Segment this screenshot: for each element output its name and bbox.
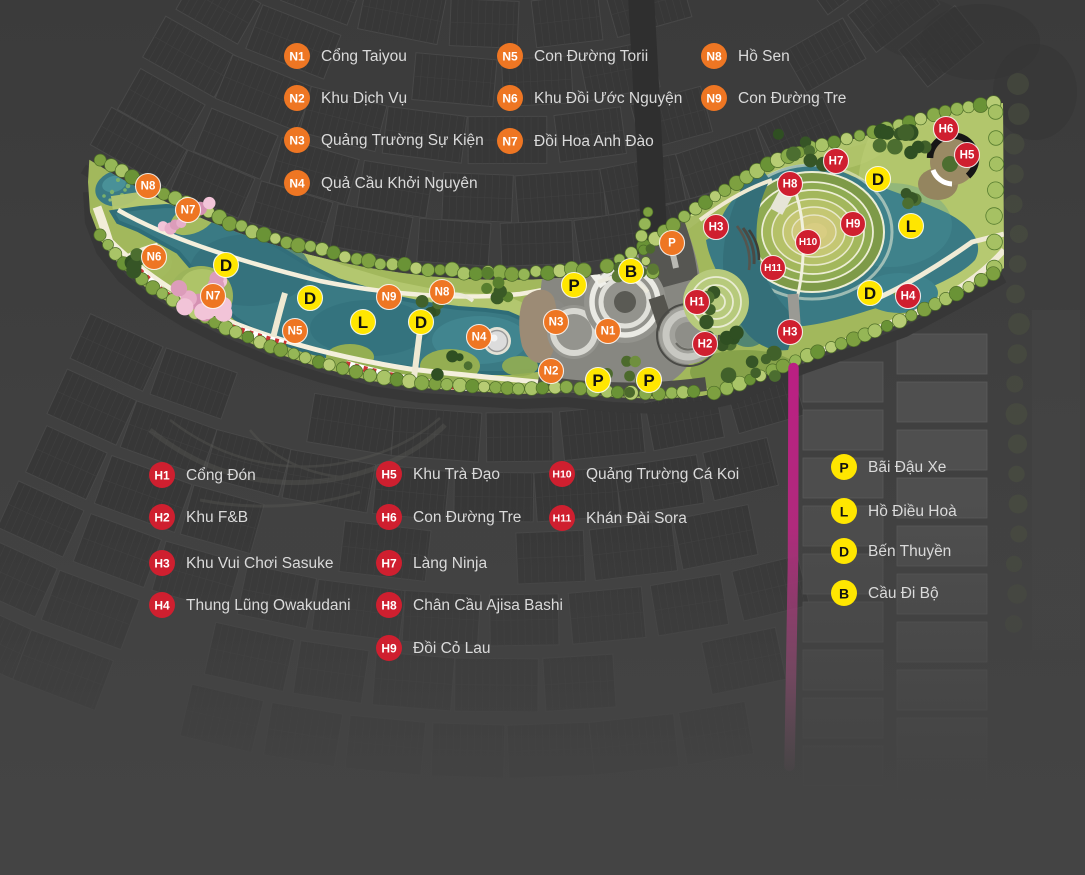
svg-text:Thung Lũng Owakudani: Thung Lũng Owakudani [186,597,351,614]
svg-text:L: L [840,504,849,520]
svg-text:H2: H2 [698,339,713,351]
svg-text:H6: H6 [381,511,397,525]
svg-text:H5: H5 [381,468,397,482]
svg-text:P: P [668,238,676,250]
svg-text:H4: H4 [901,291,916,303]
svg-text:N4: N4 [472,332,487,344]
svg-text:D: D [864,284,876,303]
svg-text:H3: H3 [154,557,170,571]
svg-text:Cổng Đón: Cổng Đón [186,467,256,484]
svg-text:D: D [839,544,849,560]
svg-text:Hồ Điều Hoà: Hồ Điều Hoà [868,503,957,520]
svg-text:H10: H10 [799,237,818,248]
svg-text:H8: H8 [381,599,397,613]
svg-text:N8: N8 [141,181,156,193]
svg-text:H3: H3 [709,222,724,234]
svg-text:D: D [872,170,884,189]
svg-text:N8: N8 [435,287,450,299]
svg-text:L: L [358,313,368,332]
svg-text:H1: H1 [154,469,170,483]
svg-text:D: D [304,289,316,308]
svg-text:H7: H7 [829,156,844,168]
svg-text:Quảng Trường Sự Kiện: Quảng Trường Sự Kiện [321,132,484,149]
svg-text:Chân Cầu Ajisa Bashi: Chân Cầu Ajisa Bashi [413,597,563,614]
svg-text:N5: N5 [502,50,518,64]
svg-text:H4: H4 [154,599,170,613]
svg-text:N9: N9 [706,92,722,106]
svg-text:Cầu Đi Bộ: Cầu Đi Bộ [868,585,939,602]
svg-text:Con Đường Torii: Con Đường Torii [534,48,648,65]
svg-text:Khu Vui Chơi Sasuke: Khu Vui Chơi Sasuke [186,555,333,572]
svg-text:Khu Trà Đạo: Khu Trà Đạo [413,466,500,483]
svg-text:N7: N7 [181,205,196,217]
svg-text:P: P [568,276,579,295]
svg-text:Bãi Đậu Xe: Bãi Đậu Xe [868,459,946,476]
svg-text:Khu Đồi Ước Nguyện: Khu Đồi Ước Nguyện [534,90,682,107]
svg-text:N1: N1 [289,50,305,64]
svg-text:N7: N7 [206,291,221,303]
svg-text:Làng Ninja: Làng Ninja [413,555,487,572]
svg-text:N3: N3 [549,317,564,329]
svg-text:N6: N6 [502,92,518,106]
svg-text:N7: N7 [502,135,518,149]
svg-text:H11: H11 [764,263,782,274]
svg-text:Đồi Cỏ Lau: Đồi Cỏ Lau [413,640,491,657]
svg-text:H6: H6 [939,124,954,136]
svg-text:Khán Đài Sora: Khán Đài Sora [586,510,687,527]
svg-text:Đồi Hoa Anh Đào: Đồi Hoa Anh Đào [534,133,654,150]
svg-text:H11: H11 [553,513,572,525]
svg-text:D: D [415,313,427,332]
svg-text:H9: H9 [846,219,861,231]
svg-text:N4: N4 [289,177,305,191]
svg-text:H3: H3 [783,327,798,339]
svg-text:N1: N1 [601,326,616,338]
svg-text:Quảng Trường Cá Koi: Quảng Trường Cá Koi [586,466,739,483]
svg-text:Khu Dịch Vụ: Khu Dịch Vụ [321,90,407,107]
svg-text:Quả Cầu Khởi Nguyên: Quả Cầu Khởi Nguyên [321,175,478,192]
svg-text:H10: H10 [552,469,571,481]
svg-text:H8: H8 [783,179,798,191]
svg-text:P: P [643,371,654,390]
svg-text:N5: N5 [288,326,303,338]
svg-text:P: P [839,460,848,476]
svg-text:N2: N2 [289,92,305,106]
svg-text:Con Đường Tre: Con Đường Tre [413,509,521,526]
svg-text:N8: N8 [706,50,722,64]
svg-text:Con Đường Tre: Con Đường Tre [738,90,846,107]
svg-text:N3: N3 [289,134,305,148]
svg-text:H7: H7 [381,557,397,571]
svg-text:H5: H5 [960,150,975,162]
svg-text:Cổng Taiyou: Cổng Taiyou [321,48,407,65]
svg-text:B: B [625,262,637,281]
svg-text:H1: H1 [690,297,705,309]
svg-text:Khu F&B: Khu F&B [186,509,248,526]
svg-text:Hồ Sen: Hồ Sen [738,48,790,65]
svg-text:L: L [906,217,916,236]
svg-text:N9: N9 [382,292,397,304]
svg-text:Bến Thuyền: Bến Thuyền [868,543,951,560]
svg-text:D: D [220,256,232,275]
svg-text:H9: H9 [381,642,397,656]
svg-text:N2: N2 [544,366,559,378]
svg-text:H2: H2 [154,511,170,525]
svg-text:P: P [592,371,603,390]
svg-text:N6: N6 [147,252,162,264]
svg-text:B: B [839,586,849,602]
